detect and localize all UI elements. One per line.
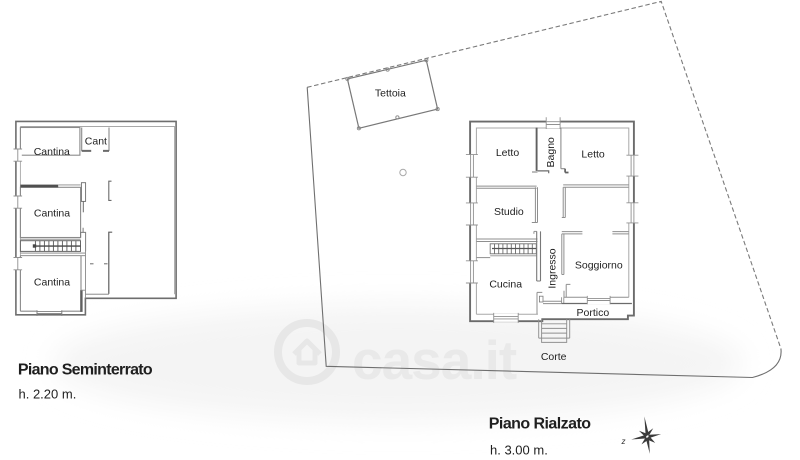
svg-text:h. 2.20 m.: h. 2.20 m. [19,386,77,401]
svg-text:Piano Rialzato: Piano Rialzato [489,416,591,433]
svg-text:Bagno: Bagno [545,137,557,168]
svg-text:Cucina: Cucina [489,278,522,290]
svg-text:Ingresso: Ingresso [547,248,559,288]
svg-text:Cantina: Cantina [34,208,70,220]
svg-text:Letto: Letto [581,148,605,160]
svg-text:Studio: Studio [494,206,524,218]
svg-text:z: z [621,437,626,446]
svg-text:Cantina: Cantina [34,277,70,289]
svg-text:Cant: Cant [85,135,107,147]
svg-text:Soggiorno: Soggiorno [575,260,623,272]
svg-text:h. 3.00 m.: h. 3.00 m. [490,442,548,457]
svg-text:casa.it: casa.it [352,329,517,391]
svg-text:Corte: Corte [541,351,567,363]
svg-text:Portico: Portico [577,307,610,319]
svg-text:Letto: Letto [496,147,520,159]
svg-text:Cantina: Cantina [34,146,70,158]
svg-text:Piano Seminterrato: Piano Seminterrato [18,361,153,378]
svg-text:Tettoia: Tettoia [375,88,406,100]
